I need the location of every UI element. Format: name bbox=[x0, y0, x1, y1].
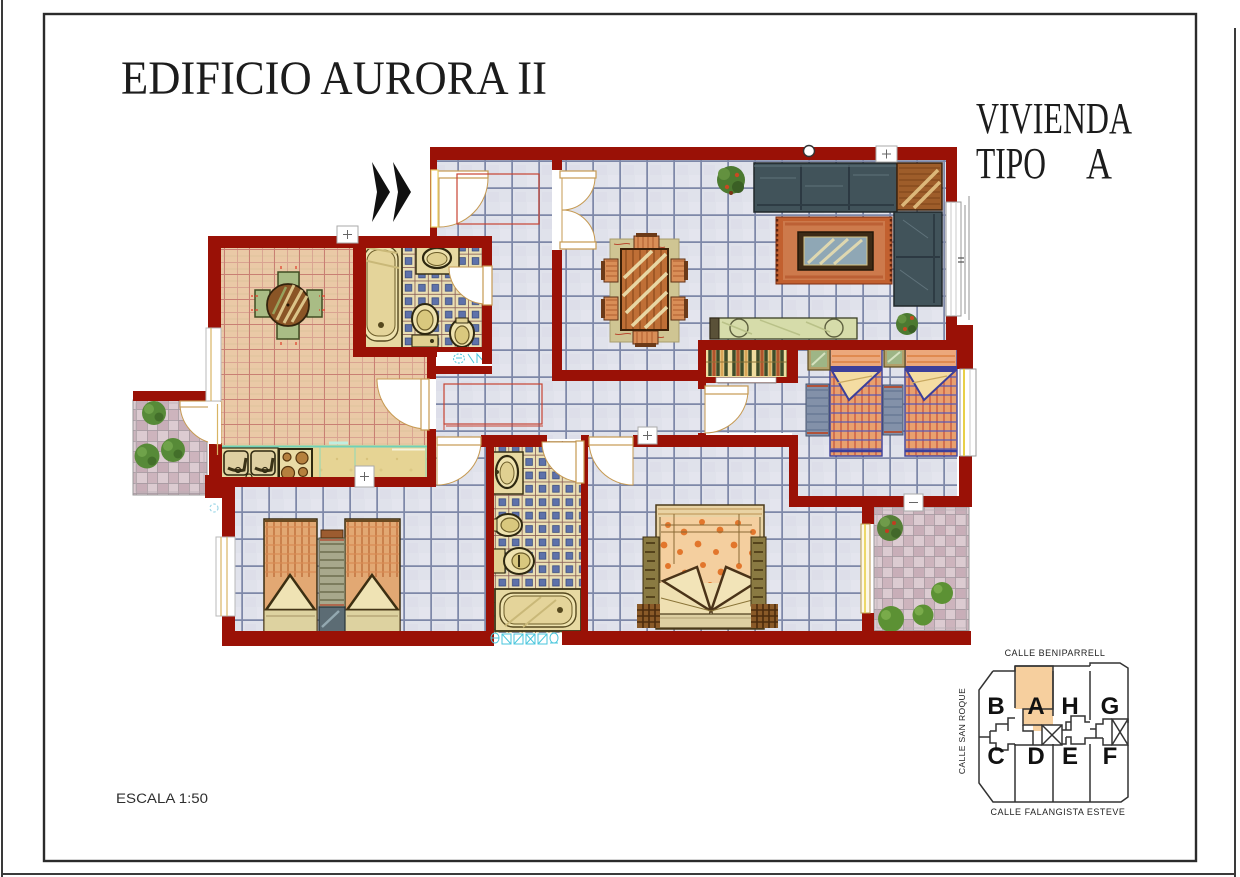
svg-text:H: H bbox=[1061, 693, 1078, 720]
svg-text:CALLE BENIPARRELL: CALLE BENIPARRELL bbox=[1005, 648, 1106, 658]
svg-text:EDIFICIO AURORA II: EDIFICIO AURORA II bbox=[121, 52, 547, 105]
svg-text:VIVIENDA: VIVIENDA bbox=[976, 94, 1132, 143]
svg-text:E: E bbox=[1062, 743, 1078, 770]
svg-text:CALLE FALANGISTA ESTEVE: CALLE FALANGISTA ESTEVE bbox=[991, 807, 1126, 817]
svg-text:D: D bbox=[1027, 743, 1044, 770]
svg-text:A: A bbox=[1086, 139, 1112, 188]
svg-text:C: C bbox=[987, 743, 1004, 770]
svg-text:A: A bbox=[1027, 693, 1044, 720]
svg-text:B: B bbox=[987, 693, 1004, 720]
svg-text:ESCALA 1:50: ESCALA 1:50 bbox=[116, 791, 208, 806]
svg-text:G: G bbox=[1101, 693, 1120, 720]
svg-text:F: F bbox=[1103, 743, 1118, 770]
svg-text:TIPO: TIPO bbox=[976, 139, 1046, 188]
svg-text:CALLE SAN ROQUE: CALLE SAN ROQUE bbox=[957, 688, 967, 774]
